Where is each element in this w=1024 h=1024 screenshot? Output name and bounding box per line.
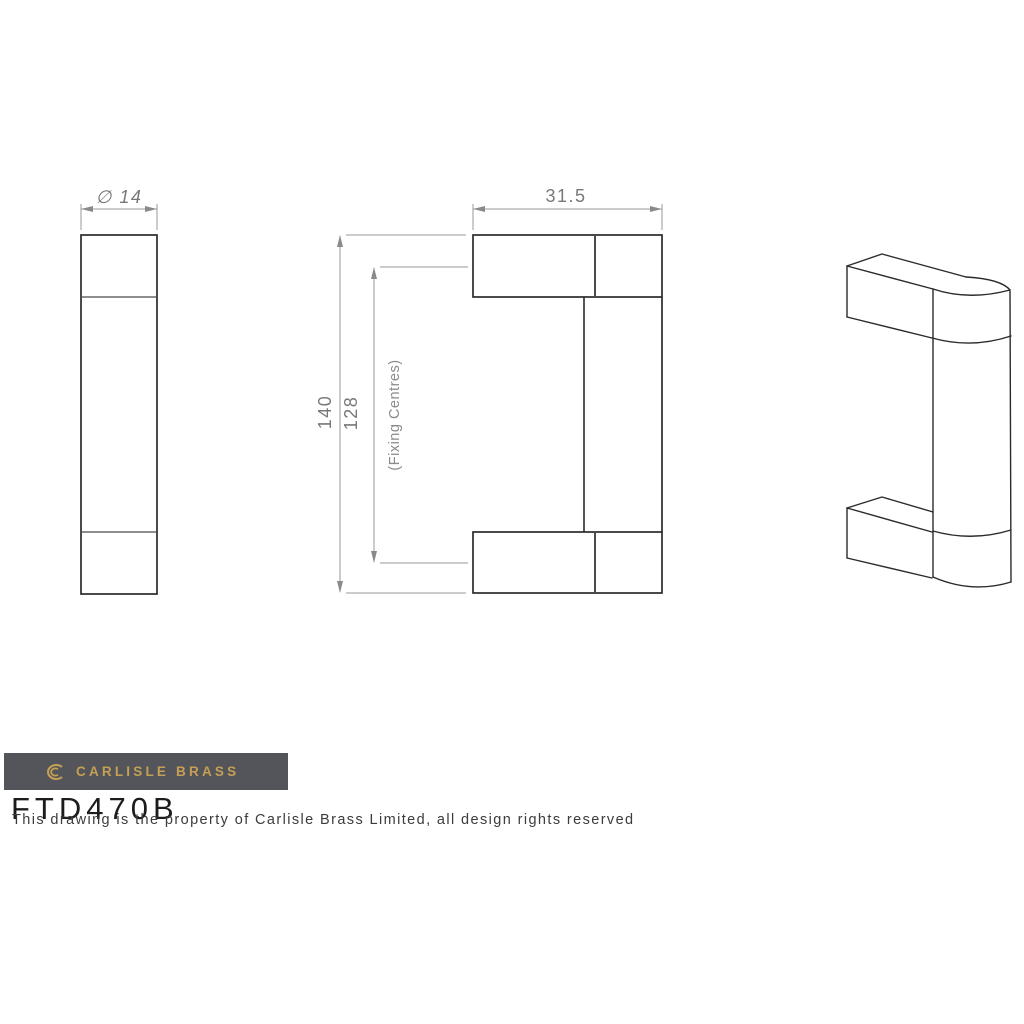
arrowhead-down-icon — [371, 551, 377, 563]
bar-right-edge — [1010, 291, 1011, 582]
arrowhead-right-icon — [650, 206, 662, 212]
arrowhead-up-icon — [337, 235, 343, 247]
fixing-centres-value: 128 — [341, 396, 361, 431]
overall-length-label: 140 — [315, 395, 335, 430]
side-view — [81, 235, 157, 594]
isometric-view — [847, 254, 1011, 587]
brand-banner: CARLISLE BRASS — [4, 753, 288, 790]
arrowhead-left-icon — [81, 206, 93, 212]
brand-name: CARLISLE BRASS — [76, 764, 239, 779]
front-view — [473, 235, 662, 593]
arrowhead-right-icon — [145, 206, 157, 212]
side-view-body — [81, 235, 157, 594]
fixing-centres-note: (Fixing Centres) — [387, 359, 403, 470]
dimension-width: 31.5 — [473, 186, 662, 230]
front-view-top-leg — [473, 235, 662, 297]
dimension-fixing-centres: 128 (Fixing Centres) — [341, 267, 468, 563]
top-leg-underside-arc — [932, 336, 1011, 343]
diameter-label: ∅ 14 — [96, 187, 143, 207]
arrowhead-down-icon — [337, 581, 343, 593]
top-leg-front-bottom-edge — [847, 317, 932, 338]
arrowhead-up-icon — [371, 267, 377, 279]
bar-top-front-arc — [933, 289, 1010, 295]
front-view-bottom-leg — [473, 532, 662, 593]
technical-drawing-page: ∅ 14 31.5 140 — [0, 0, 1024, 1024]
top-leg-front-top-edge — [847, 266, 933, 289]
bottom-leg-front-top-edge — [847, 508, 932, 532]
carlisle-brass-logo-icon — [42, 762, 66, 782]
bar-bottom-arc — [933, 577, 1011, 587]
width-label: 31.5 — [545, 186, 586, 206]
bar-top-back-arc — [966, 277, 1010, 290]
disclaimer-text: This drawing is the property of Carlisle… — [12, 812, 635, 828]
dimension-diameter: ∅ 14 — [81, 187, 157, 230]
bottom-leg-top-face — [847, 497, 933, 512]
bottom-leg-top-arc — [933, 530, 1011, 536]
bottom-leg-front-bottom-edge — [847, 558, 932, 578]
arrowhead-left-icon — [473, 206, 485, 212]
drawing-canvas: ∅ 14 31.5 140 — [0, 0, 1024, 1024]
top-leg-top-face — [847, 254, 966, 277]
